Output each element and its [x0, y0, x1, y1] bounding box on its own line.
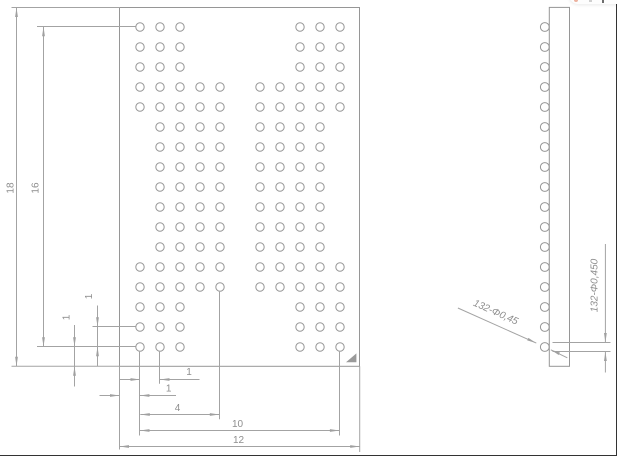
- svg-text:1: 1: [166, 384, 172, 395]
- svg-text:16: 16: [31, 182, 42, 194]
- svg-text:1: 1: [84, 293, 95, 299]
- svg-text:18: 18: [6, 182, 17, 194]
- svg-text:132-Φ0,45: 132-Φ0,45: [471, 298, 520, 328]
- svg-text:1: 1: [186, 367, 192, 378]
- svg-text:10: 10: [232, 419, 244, 430]
- svg-text:1: 1: [62, 314, 73, 320]
- svg-text:4: 4: [175, 403, 181, 414]
- svg-text:132-Φ0,450: 132-Φ0,450: [590, 258, 601, 312]
- svg-text:12: 12: [233, 435, 245, 446]
